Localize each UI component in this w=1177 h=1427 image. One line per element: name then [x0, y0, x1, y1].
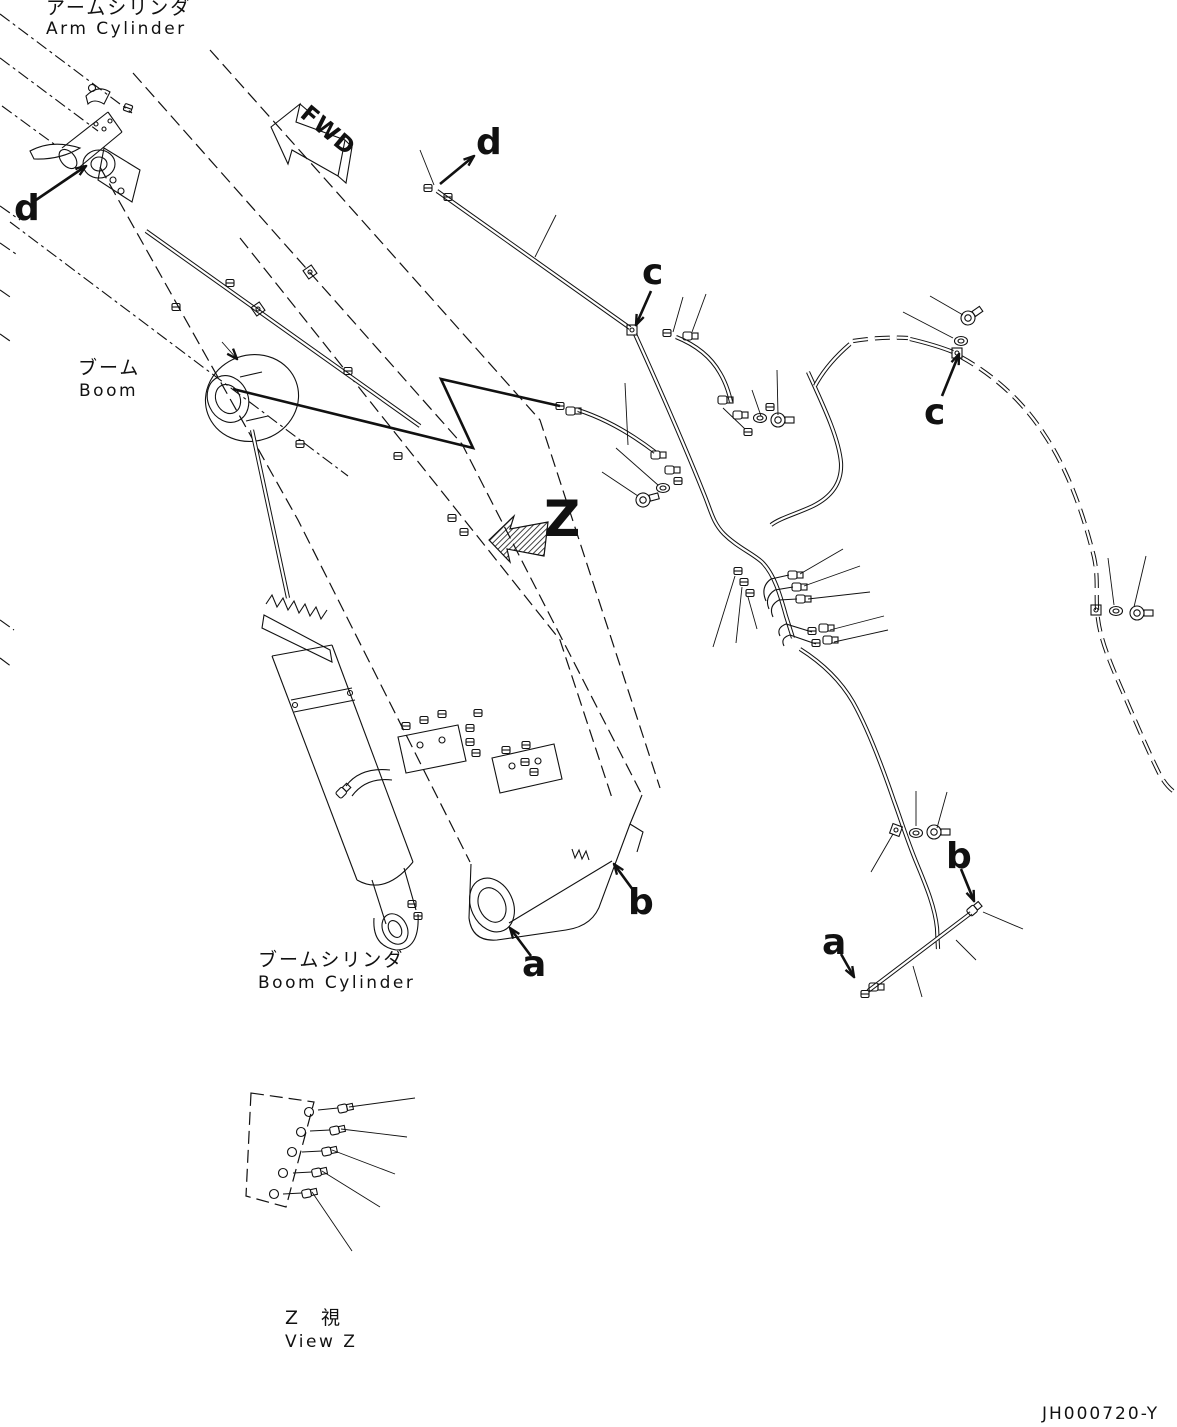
fasteners [172, 185, 1153, 998]
callout-a-pipe-right: a [822, 922, 846, 963]
detail-pointer-zigzag [233, 379, 560, 448]
boom-cylinder-label-en: Boom Cylinder [258, 974, 415, 994]
boom-cylinder-drawing [252, 430, 422, 950]
tube-runs [437, 191, 971, 991]
callout-b-pipe-right: b [946, 836, 972, 877]
arm-cylinder-label-en: Arm Cylinder [46, 20, 187, 40]
boom-piping [146, 231, 562, 793]
view-z-label-jp: Z 視 [285, 1308, 342, 1330]
callout-c-tube-clamp: c [642, 252, 663, 293]
boom-label-en: Boom [79, 382, 138, 402]
parts-diagram-page: FWD [0, 0, 1177, 1427]
arm-cylinder-drawing [30, 85, 140, 203]
callout-a-boom-foot: a [522, 944, 546, 985]
callout-c-hose-clamp: c [924, 392, 945, 433]
centerlines [0, 14, 348, 667]
view-z-label-en: View Z [285, 1333, 357, 1353]
callout-d-arm-cylinder: d [14, 188, 40, 229]
view-z-plate [246, 1093, 415, 1251]
arm-cylinder-label-jp: アームシリンダ [46, 0, 191, 20]
fwd-arrow: FWD [271, 101, 360, 183]
boom-outline [100, 50, 660, 862]
document-number: JH000720-Y [1042, 1404, 1159, 1424]
diagram-line-art: FWD [0, 0, 1177, 1427]
callout-arrows [33, 156, 974, 977]
callout-b-boom-foot: b [628, 882, 654, 923]
callout-z-view: Z [544, 490, 580, 548]
callout-d-tube-end: d [476, 122, 502, 163]
leader-lines [420, 150, 1146, 997]
fwd-text: FWD [295, 101, 360, 162]
hose-run [815, 338, 1177, 795]
boom-label-jp: ブーム [78, 358, 140, 380]
boom-cylinder-label-jp: ブームシリンダ [258, 950, 404, 972]
